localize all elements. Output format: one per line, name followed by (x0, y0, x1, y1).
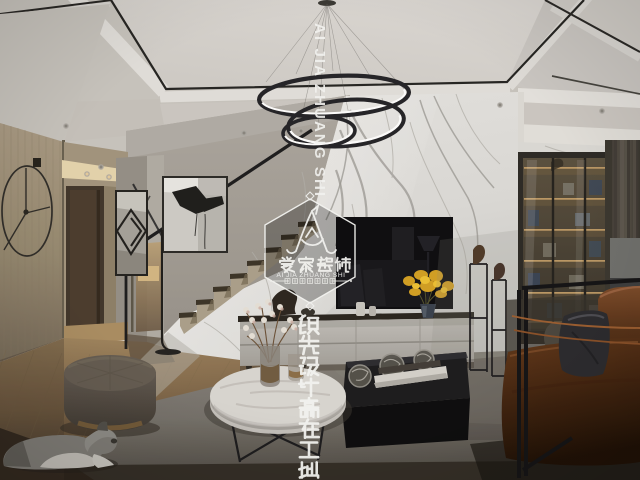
svg-text:AI JIA ZHUANG SHI: AI JIA ZHUANG SHI (311, 23, 328, 198)
svg-text:AI JIA ZHUANG SHI: AI JIA ZHUANG SHI (276, 272, 345, 279)
